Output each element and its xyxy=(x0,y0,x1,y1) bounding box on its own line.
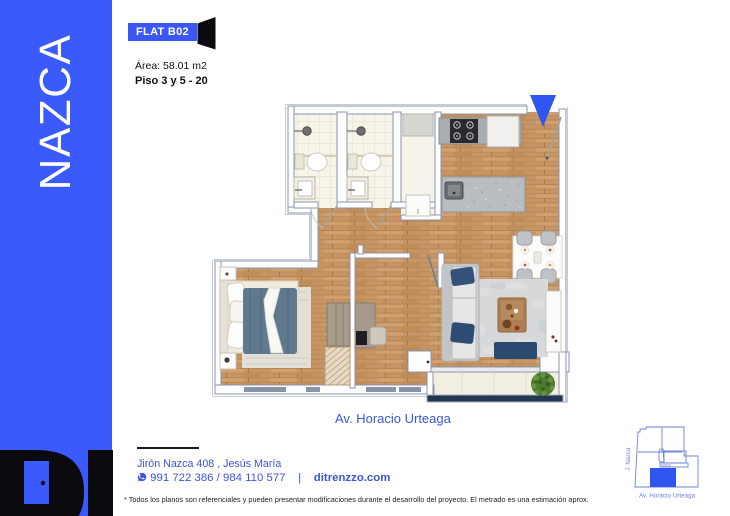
svg-text:J. Nazca: J. Nazca xyxy=(626,447,632,471)
svg-text:Av. Horacio Urteaga: Av. Horacio Urteaga xyxy=(639,493,696,500)
